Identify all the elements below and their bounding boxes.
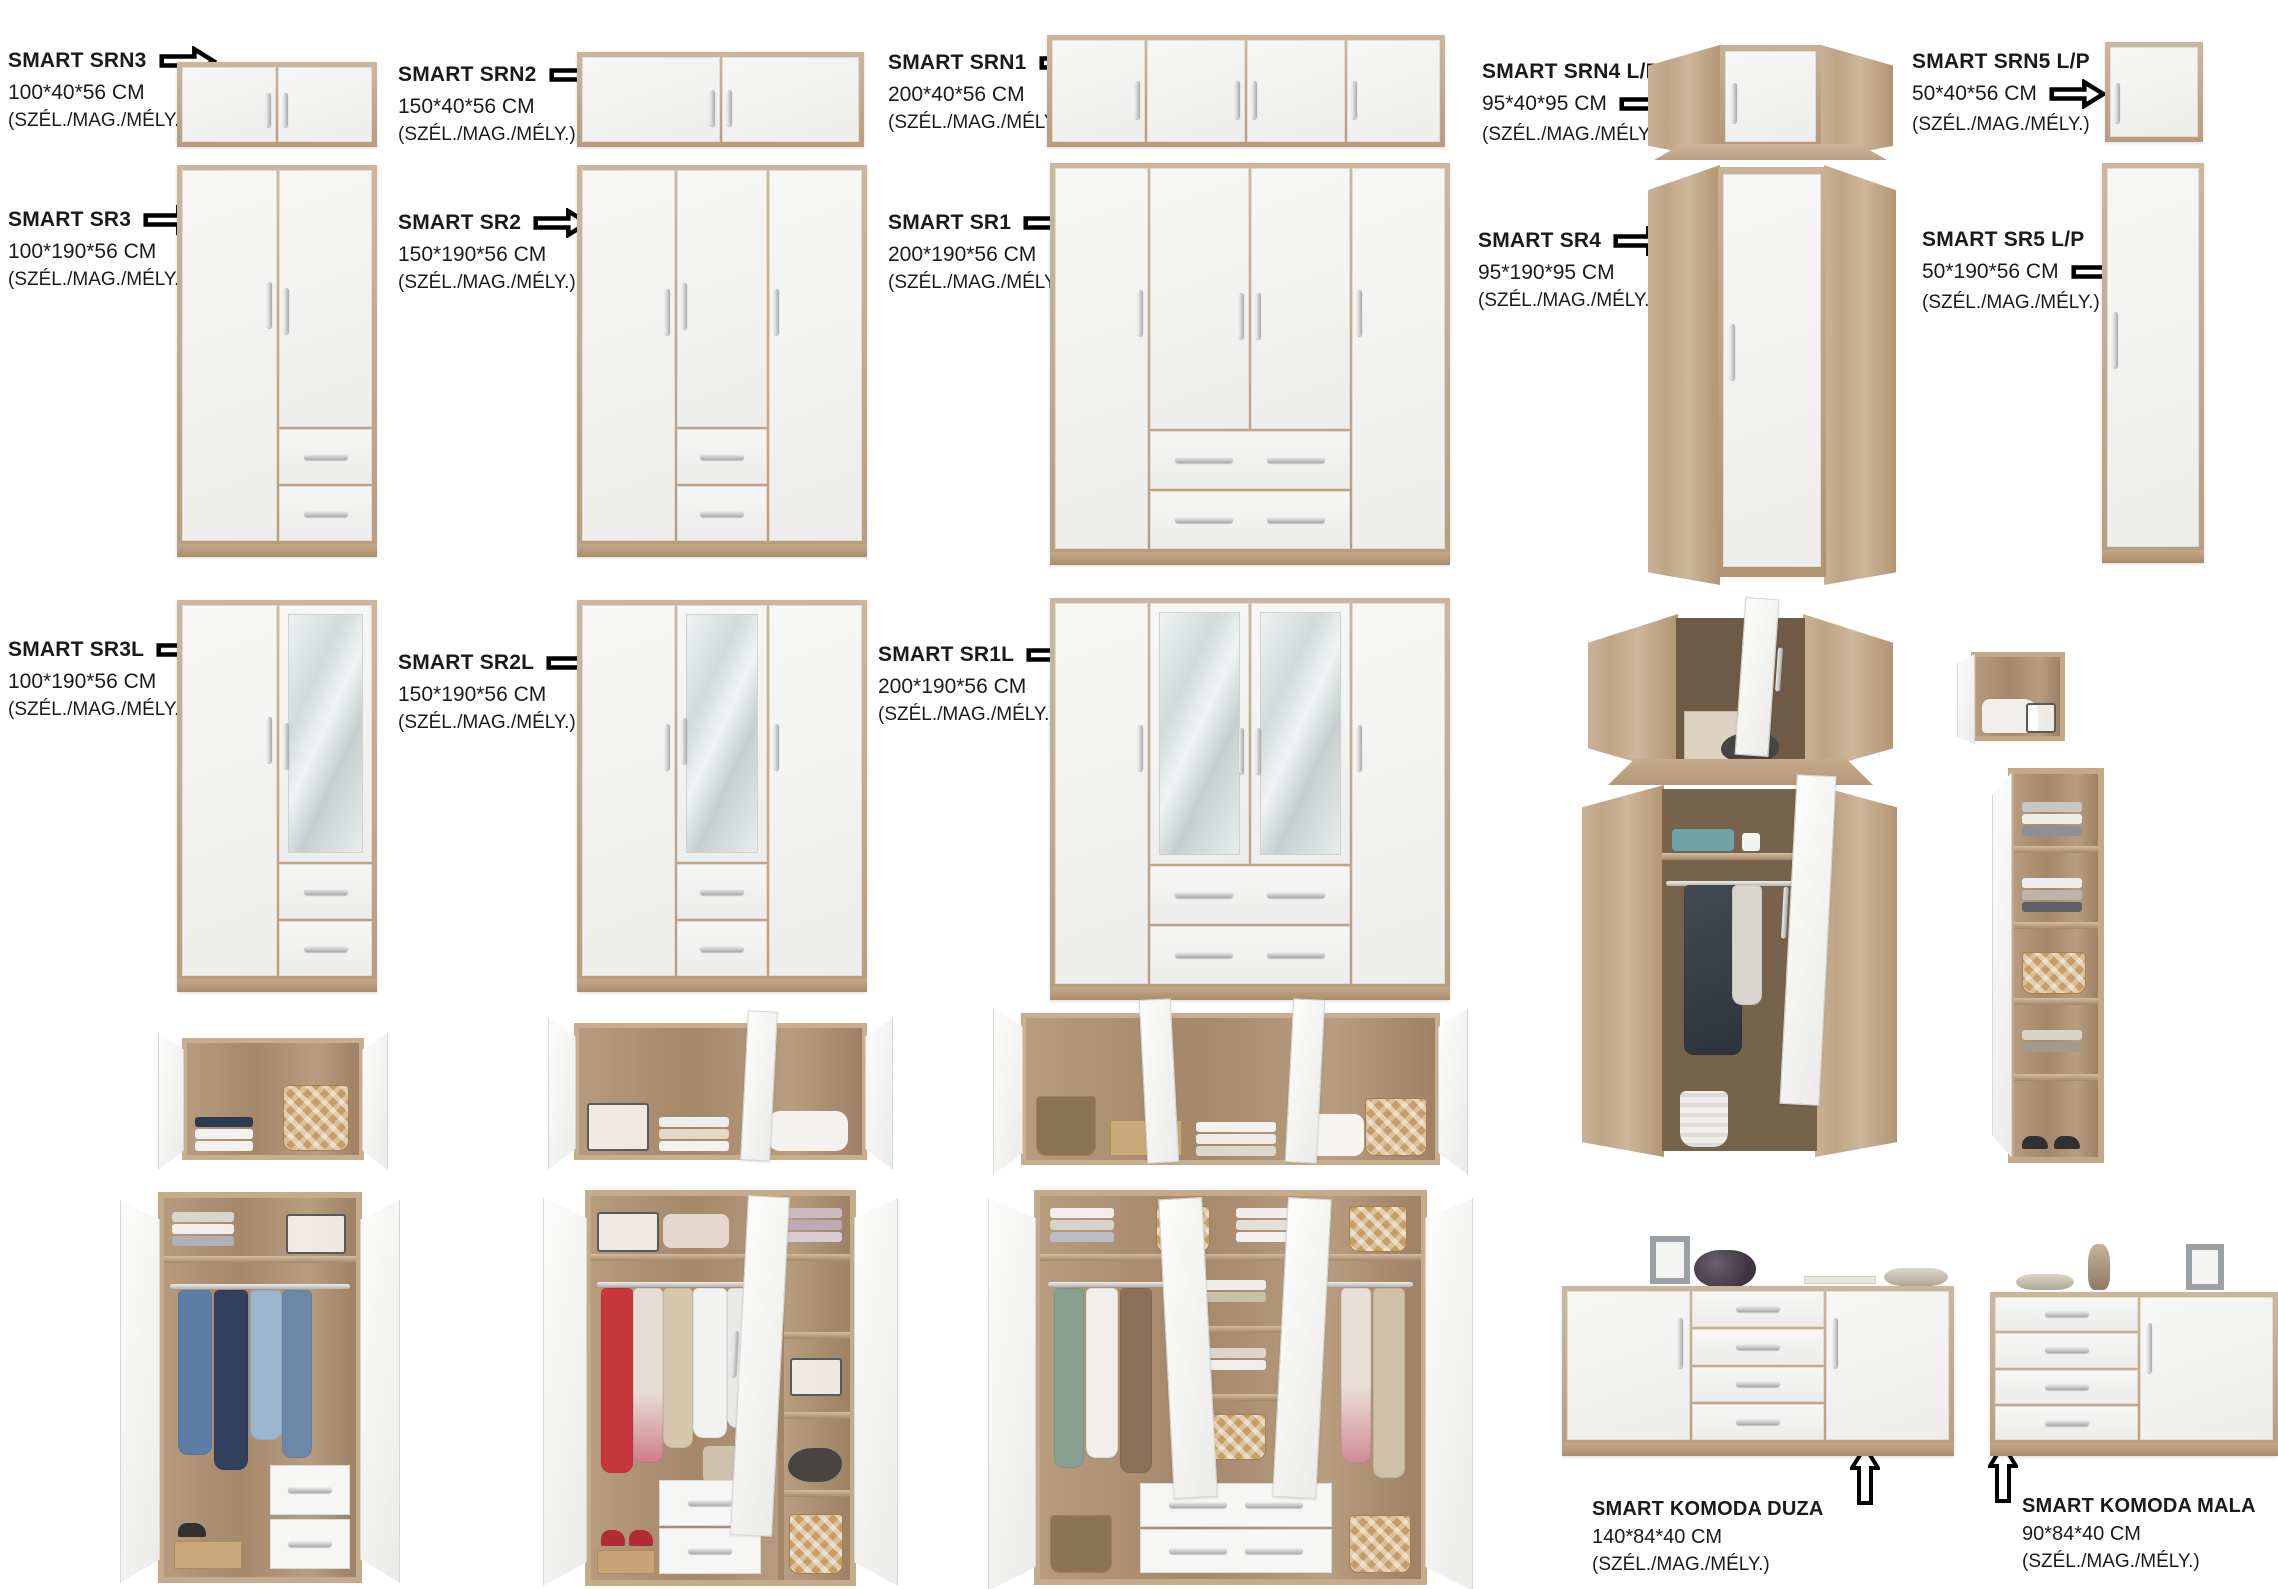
wardrobe-door <box>1150 168 1249 429</box>
hanging-floral-dress <box>1341 1288 1371 1463</box>
product-name: SMART SR3L <box>8 638 144 662</box>
mirror <box>1260 612 1341 855</box>
cabinet-door <box>1147 40 1245 142</box>
sr1-wardrobe-image <box>1050 163 1450 565</box>
folded-clothes <box>1196 1122 1276 1156</box>
folded-towels <box>786 1208 842 1242</box>
folded-clothes <box>2022 802 2082 836</box>
product-dimensions: 95*40*95 CM <box>1482 92 1607 116</box>
door-handle <box>284 723 289 769</box>
wire-basket <box>587 1103 649 1151</box>
srn4-open-corner-top-cabinet-image <box>1588 598 1893 793</box>
product-name: SMART SR4 <box>1478 229 1601 253</box>
door-handle <box>1138 290 1143 336</box>
drawer-handle <box>700 946 744 952</box>
hanging-garment <box>178 1290 212 1455</box>
sr3-open-top-cabinet-image <box>158 1030 388 1170</box>
cabinet-door <box>278 67 372 142</box>
drawer-handle <box>1245 1502 1303 1508</box>
sr1-open-top-cabinet-image <box>993 1005 1468 1175</box>
cabinet-doors <box>1052 40 1440 142</box>
wardrobe-drawer <box>279 921 372 976</box>
sr1l-mirror-wardrobe-image <box>1050 598 1450 1000</box>
cabinet-bottom-panel <box>1654 144 1887 160</box>
open-wardrobe-door <box>854 1186 898 1586</box>
wardrobe-interior <box>585 1190 856 1586</box>
cabinet-door <box>2110 47 2198 137</box>
drawer-handle <box>304 511 348 517</box>
product-dimensions: 100*190*56 CM <box>8 240 201 264</box>
hanging-garment <box>282 1290 312 1458</box>
wardrobe-doors <box>582 170 862 541</box>
folded-clothes <box>659 1117 729 1151</box>
sr2-open-wardrobe-image <box>543 1186 898 1586</box>
wardrobe-doors <box>2107 168 2199 547</box>
cabinet-door <box>182 67 276 142</box>
hanging-rail <box>170 1284 350 1289</box>
wardrobe-interior <box>2008 768 2104 1163</box>
wardrobe-doors <box>1055 603 1445 984</box>
wardrobe-doors <box>582 605 862 976</box>
open-cabinet-door <box>865 1015 893 1170</box>
drawer-handle <box>2045 1311 2089 1317</box>
wardrobe-inner-doors <box>1150 168 1351 429</box>
shoes <box>2022 1136 2048 1149</box>
folded-item <box>1050 1232 1114 1242</box>
komoda-drawer-column <box>1995 1297 2138 1440</box>
door-handle <box>1235 81 1240 119</box>
folded-item <box>1196 1134 1276 1144</box>
cabinet-interior <box>1021 1013 1440 1165</box>
drawer-handle <box>1267 952 1325 958</box>
wardrobe-door <box>2107 168 2199 547</box>
wardrobe-mirror-door <box>1251 603 1350 864</box>
sr4-corner-wardrobe-image <box>1648 165 1896 585</box>
folded-item <box>2022 878 2082 888</box>
drawer-handle <box>700 889 744 895</box>
folded-item <box>1196 1146 1276 1156</box>
product-name: SMART SR2 <box>398 211 521 235</box>
drawer-handle <box>1267 892 1325 898</box>
product-dimensions: 150*190*56 CM <box>398 243 591 267</box>
drawer-handle <box>2045 1384 2089 1390</box>
door-handle <box>682 718 687 764</box>
interior-shelf <box>2014 998 2098 1005</box>
wire-basket <box>2026 703 2056 733</box>
wicker-basket <box>1349 1515 1411 1573</box>
folded-item <box>2022 1030 2082 1040</box>
wardrobe-drawer <box>1150 491 1351 549</box>
wardrobe-column <box>677 170 768 541</box>
door-handle <box>267 282 272 328</box>
product-name: SMART SRN1 <box>888 51 1027 75</box>
interior-drawer <box>270 1519 350 1569</box>
hanging-garment <box>1054 1288 1084 1468</box>
product-dimensions: 150*40*56 CM <box>398 95 607 119</box>
wardrobe-mirror-door <box>677 605 768 862</box>
drawer-handle <box>1169 1548 1227 1554</box>
drawer-handle <box>288 1541 332 1547</box>
drawer-handle <box>1169 1502 1227 1508</box>
wardrobe-plinth <box>577 544 867 557</box>
cabinet-interior <box>182 1038 364 1160</box>
komoda-drawer <box>1692 1367 1825 1403</box>
product-dimension-note: (SZÉL./MAG./MÉLY.) <box>1912 114 2107 136</box>
product-name: SMART SR2L <box>398 651 534 675</box>
interior-shelf <box>2014 922 2098 929</box>
door-handle <box>1678 1318 1683 1368</box>
red-shoes <box>601 1530 625 1546</box>
srn5-open-top-cabinet-image <box>1957 652 2065 747</box>
wardrobe-inner-doors <box>1150 603 1351 864</box>
decor-bowl <box>1884 1268 1948 1286</box>
wardrobe-side-panel <box>1648 165 1720 585</box>
komoda-drawer <box>1692 1404 1825 1440</box>
product-dimension-note: (SZÉL./MAG./MÉLY.) <box>1592 1554 1824 1576</box>
wardrobe-door <box>1352 603 1445 984</box>
wardrobe-mirror-door <box>279 605 372 862</box>
wardrobe-plinth <box>177 544 377 557</box>
wardrobe-drawer <box>279 486 372 541</box>
door-handle <box>284 288 289 334</box>
wardrobe-door <box>1055 168 1148 549</box>
sr3l-mirror-wardrobe-image <box>177 600 377 992</box>
product-name: SMART SRN3 <box>8 49 147 73</box>
hanging-garment <box>214 1290 248 1470</box>
wicker-basket <box>789 1514 843 1574</box>
shoes <box>178 1523 206 1537</box>
wire-basket <box>790 1358 842 1396</box>
product-dimension-note: (SZÉL./MAG./MÉLY.) <box>8 269 201 291</box>
door-handle <box>1252 81 1257 119</box>
product-label-sr2l: SMART SR2L 150*190*56 CM (SZÉL./MAG./MÉL… <box>398 648 604 734</box>
basket <box>1365 1098 1427 1156</box>
product-name: SMART SR3 <box>8 208 131 232</box>
door-handle <box>665 724 670 770</box>
door-handle <box>1256 293 1261 339</box>
sr2l-mirror-wardrobe-image <box>577 600 867 992</box>
komoda-front <box>1995 1297 2273 1440</box>
open-wardrobe-door <box>543 1186 587 1586</box>
folded-item <box>195 1117 253 1127</box>
cabinet-door <box>1347 40 1440 142</box>
wardrobe-door <box>1352 168 1445 549</box>
product-dimension-note: (SZÉL./MAG./MÉLY.) <box>398 712 604 734</box>
drawer-handle <box>1175 457 1233 463</box>
cabinet-side-panel <box>1819 42 1893 160</box>
wardrobe-door <box>1055 603 1148 984</box>
red-shoes <box>629 1530 653 1546</box>
folded-item <box>1196 1122 1276 1132</box>
wardrobe-mirror-door <box>1150 603 1249 864</box>
product-dimension-note: (SZÉL./MAG./MÉLY.) <box>1478 290 1671 312</box>
wardrobe-drawer <box>279 864 372 919</box>
cabinet-front <box>1720 45 1821 146</box>
product-dimension-note: (SZÉL./MAG./MÉLY.) <box>398 124 607 146</box>
komoda-drawer-column <box>1692 1291 1825 1440</box>
wardrobe-drawer <box>1150 866 1351 924</box>
product-label-sr2: SMART SR2 150*190*56 CM (SZÉL./MAG./MÉLY… <box>398 208 591 294</box>
hanging-rail <box>1048 1282 1168 1287</box>
drawer-handle <box>700 454 744 460</box>
door-handle <box>1138 725 1143 771</box>
drawer-handle <box>1175 952 1233 958</box>
hanging-coat <box>1120 1288 1152 1473</box>
basket <box>283 1085 349 1151</box>
arrow-right-icon <box>2049 79 2107 109</box>
cabinet-door <box>1725 51 1816 142</box>
door-handle <box>2113 312 2118 368</box>
wardrobe-door <box>1251 168 1350 429</box>
srn3-top-cabinet-image <box>177 62 377 147</box>
hanging-floral-dress <box>633 1288 663 1463</box>
mug <box>1742 833 1760 851</box>
wardrobe-doors <box>182 605 372 976</box>
wardrobe-column <box>279 170 372 541</box>
drawer-handle <box>2045 1347 2089 1353</box>
wardrobe-door <box>769 170 862 541</box>
folded-item <box>2022 890 2082 900</box>
wardrobe-doors <box>1055 168 1445 549</box>
drawer-handle <box>688 1548 732 1554</box>
door-handle <box>774 289 779 335</box>
komoda-door <box>2140 1297 2273 1440</box>
cabinet-doors <box>2110 47 2198 137</box>
decor-vase <box>1694 1250 1756 1288</box>
pillow <box>768 1111 848 1151</box>
wardrobe-plinth <box>177 979 377 992</box>
sr5-wardrobe-image <box>2102 163 2204 563</box>
drawer-handle <box>304 454 348 460</box>
door-handle <box>1357 725 1362 771</box>
mirror <box>686 614 759 853</box>
srn2-top-cabinet-image <box>577 52 864 147</box>
interior-shelf <box>784 1412 850 1419</box>
product-label-komoda-duza: SMART KOMODA DUZA 140*84*40 CM (SZÉL./MA… <box>1592 1498 1824 1576</box>
door-handle <box>1135 81 1140 119</box>
product-name: SMART SRN2 <box>398 63 537 87</box>
sr2-open-top-cabinet-image <box>548 1015 893 1170</box>
door-handle <box>1352 81 1357 119</box>
product-label-sr4: SMART SR4 95*190*95 CM (SZÉL./MAG./MÉLY.… <box>1478 226 1671 312</box>
door-handle <box>283 93 288 127</box>
shoes <box>2054 1136 2080 1149</box>
wardrobe-door <box>279 170 372 427</box>
open-cabinet-door <box>548 1015 576 1170</box>
wardrobe-interior <box>1034 1190 1427 1585</box>
komoda-front <box>1567 1291 1949 1440</box>
wardrobe-column <box>677 605 768 976</box>
folded-clothes <box>195 1117 253 1151</box>
komoda-drawer <box>1995 1333 2138 1367</box>
wardrobe-plinth <box>2102 550 2204 563</box>
wardrobe-door <box>769 605 862 976</box>
drawer-handle <box>2045 1420 2089 1426</box>
komoda-door <box>1567 1291 1690 1440</box>
sr3-open-wardrobe-image <box>120 1188 400 1583</box>
komoda-drawer <box>1995 1297 2138 1331</box>
wardrobe-drawer <box>677 921 768 976</box>
product-dimensions: 90*84*40 CM <box>2022 1523 2256 1546</box>
basket <box>1349 1206 1407 1252</box>
product-dimensions: 50*40*56 CM <box>1912 82 2037 106</box>
product-name: SMART SR5 L/P <box>1922 228 2129 252</box>
drawer-handle <box>304 889 348 895</box>
shoe-box <box>174 1541 242 1569</box>
cabinet-interior <box>1971 652 2065 741</box>
folded-item <box>172 1212 234 1222</box>
folded-item <box>659 1129 729 1139</box>
folded-item <box>195 1141 253 1151</box>
folded-item <box>172 1224 234 1234</box>
product-name: SMART KOMODA DUZA <box>1592 1498 1824 1521</box>
interior-right-column <box>778 1262 850 1580</box>
door-handle <box>1256 728 1261 774</box>
wardrobe-drawer <box>677 864 768 919</box>
catalog-page: SMART SRN3 100*40*56 CM (SZÉL./MAG./MÉLY… <box>0 0 2278 1589</box>
cabinet-door <box>1052 40 1145 142</box>
folded-clothes <box>172 1212 234 1246</box>
komoda-drawer <box>1995 1370 2138 1404</box>
product-name: SMART SRN5 L/P <box>1912 50 2107 74</box>
wrapped-blanket <box>663 1214 729 1248</box>
wardrobe-door <box>582 170 675 541</box>
sr5-open-wardrobe-image <box>1992 768 2104 1163</box>
komoda-plinth <box>1990 1443 2278 1456</box>
folded-clothes <box>2022 878 2082 912</box>
open-wardrobe-door <box>1992 772 2012 1158</box>
open-wardrobe-door <box>360 1188 400 1583</box>
door-handle <box>1730 324 1735 380</box>
product-dimensions: 150*190*56 CM <box>398 683 604 707</box>
picture-frame <box>2186 1244 2224 1290</box>
wire-basket <box>286 1214 346 1254</box>
drawer-handle <box>1245 1548 1303 1554</box>
cabinet-door <box>582 57 720 142</box>
wardrobe-door <box>1723 174 1821 567</box>
wardrobe-drawer <box>1150 431 1351 489</box>
komoda-body <box>1562 1286 1954 1456</box>
cabinet-side-panel <box>1803 614 1893 774</box>
folded-item <box>786 1208 842 1218</box>
wire-basket <box>597 1212 659 1252</box>
folded-item <box>1050 1220 1114 1230</box>
fur-blanket <box>788 1448 842 1482</box>
interior-shelf <box>1040 1254 1421 1261</box>
door-handle <box>1239 293 1244 339</box>
drawer-handle <box>288 1487 332 1493</box>
woven-basket <box>1680 1091 1728 1147</box>
folded-item <box>659 1141 729 1151</box>
product-label-sr5: SMART SR5 L/P 50*190*56 CM (SZÉL./MAG./M… <box>1922 228 2129 314</box>
drawer-handle <box>1267 457 1325 463</box>
product-dimension-note: (SZÉL./MAG./MÉLY.) <box>1922 292 2129 314</box>
open-cabinet-door <box>993 1005 1023 1175</box>
product-label-srn2: SMART SRN2 150*40*56 CM (SZÉL./MAG./MÉLY… <box>398 60 607 146</box>
komoda-plinth <box>1562 1443 1954 1456</box>
basket <box>1050 1515 1112 1573</box>
cabinet-doors <box>182 67 372 142</box>
sr4-open-corner-wardrobe-image <box>1582 775 1897 1165</box>
wardrobe-door <box>182 605 277 976</box>
shoe-box <box>597 1550 655 1574</box>
folded-clothes <box>1050 1208 1114 1242</box>
cabinet-door <box>722 57 860 142</box>
komoda-drawer <box>1692 1291 1825 1327</box>
door-handle <box>682 283 687 329</box>
product-dimension-note: (SZÉL./MAG./MÉLY.) <box>398 272 591 294</box>
folded-item <box>2022 1042 2082 1052</box>
door-handle <box>1732 83 1737 123</box>
interior-shelf <box>2014 1074 2098 1081</box>
door-handle <box>1357 290 1362 336</box>
wardrobe-side-panel <box>1582 785 1664 1157</box>
drawer-handle <box>1175 517 1233 523</box>
komoda-door <box>1826 1291 1949 1440</box>
srn5-top-cabinet-image <box>2105 42 2203 142</box>
wardrobe-door <box>182 170 277 541</box>
drawer-handle <box>1736 1419 1780 1425</box>
door-handle <box>665 289 670 335</box>
open-cabinet-door <box>362 1030 388 1170</box>
interior-shelf <box>164 1256 356 1263</box>
door-handle <box>2147 1323 2152 1373</box>
sr2-wardrobe-image <box>577 165 867 557</box>
hanging-shirt <box>693 1288 727 1438</box>
srn1-top-cabinet-image <box>1047 35 1445 147</box>
door-handle <box>1239 728 1244 774</box>
wardrobe-drawer <box>677 429 768 484</box>
drawer-handle <box>304 946 348 952</box>
komoda-drawer <box>1995 1406 2138 1440</box>
srn4-corner-top-cabinet-image <box>1648 42 1893 160</box>
drawer-handle <box>700 511 744 517</box>
mirror <box>1159 612 1240 855</box>
drawer-handle <box>1736 1381 1780 1387</box>
wardrobe-column <box>279 605 372 976</box>
drawer-handle <box>1175 892 1233 898</box>
wardrobe-plinth <box>1050 552 1450 565</box>
product-name: SMART SR1 <box>888 211 1011 235</box>
interior-drawer <box>270 1465 350 1515</box>
decor-jug <box>2088 1244 2110 1290</box>
cabinet-door <box>1247 40 1345 142</box>
cabinet-doors <box>582 57 859 142</box>
product-label-komoda-mala: SMART KOMODA MALA 90*84*40 CM (SZÉL./MAG… <box>2022 1495 2256 1573</box>
cabinet-side-panel <box>1648 42 1722 160</box>
folded-item <box>2022 814 2082 824</box>
interior-shelf <box>784 1332 850 1339</box>
hanging-garment <box>1732 885 1762 1005</box>
product-label-srn5: SMART SRN5 L/P 50*40*56 CM (SZÉL./MAG./M… <box>1912 50 2107 136</box>
product-name: SMART SR1L <box>878 643 1014 667</box>
folded-clothes <box>2022 1030 2082 1052</box>
folded-blanket <box>1672 829 1734 851</box>
door-handle <box>710 90 715 126</box>
wardrobe-drawer <box>279 429 372 484</box>
wardrobe-column <box>1150 603 1351 984</box>
open-cabinet-door <box>158 1030 184 1170</box>
basket <box>1036 1096 1096 1156</box>
wardrobe-drawer <box>1150 926 1351 984</box>
wardrobe-door <box>582 605 675 976</box>
folded-item <box>2022 826 2082 836</box>
drawer-handle <box>1736 1306 1780 1312</box>
door-handle <box>267 717 272 763</box>
hanging-coat <box>1373 1288 1405 1478</box>
product-dimension-note: (SZÉL./MAG./MÉLY.) <box>2022 1551 2256 1573</box>
product-name: SMART KOMODA MALA <box>2022 1495 2256 1518</box>
